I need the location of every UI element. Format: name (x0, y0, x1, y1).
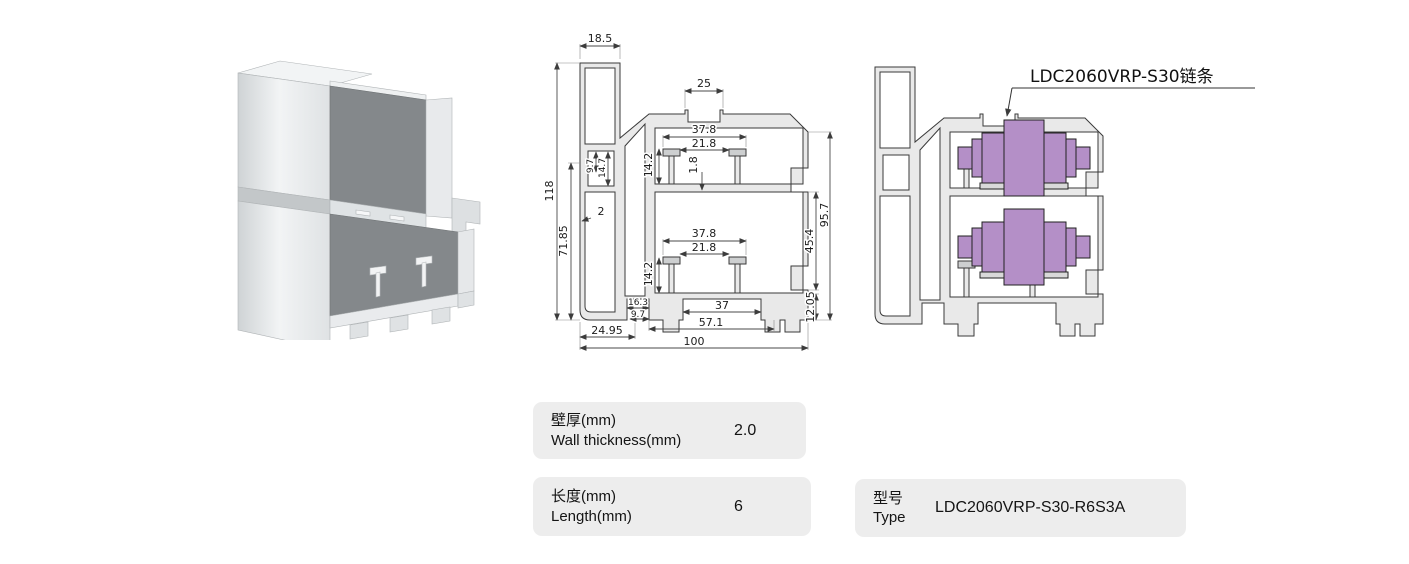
dim-100: 100 (684, 335, 705, 348)
upper-right-wall (426, 98, 452, 218)
dim-14-7: 14.7 (598, 158, 608, 178)
chain-label: LDC2060VRP-S30链条 (1030, 67, 1214, 87)
dim-12-05: 12.05 (804, 291, 817, 323)
dim-16-3: 16.3 (628, 298, 648, 308)
spec-box-wall-thickness: 壁厚(mm) Wall thickness(mm) 2.0 (533, 402, 806, 459)
length-labels: 长度(mm) Length(mm) (551, 487, 734, 526)
chain-drawing-svg: LDC2060VRP-S30链条 (830, 22, 1270, 362)
dim-1-8: 1.8 (687, 156, 700, 174)
profile-3d-render-svg (222, 48, 492, 340)
length-label-en: Length(mm) (551, 507, 734, 527)
dim-37-8-top: 37.8 (692, 123, 717, 136)
upper-box-front-face (238, 73, 330, 200)
dim-25: 25 (697, 77, 711, 90)
dim-14-2-bot: 14.2 (642, 262, 655, 287)
type-label-zh: 型号 (873, 489, 935, 509)
dimension-drawing-svg: 18.5 25 37.8 21.8 2 16.3 9.7 37 57.1 24.… (535, 18, 845, 358)
lower-box-front-face (238, 201, 330, 340)
dim-9-7-side: 9.7 (586, 159, 596, 173)
dim-57-1: 57.1 (699, 316, 724, 329)
length-value: 6 (734, 498, 743, 516)
catalog-page: 18.5 25 37.8 21.8 2 16.3 9.7 37 57.1 24.… (0, 0, 1409, 564)
wall-thickness-label-en: Wall thickness(mm) (551, 431, 734, 451)
profile-3d-render (222, 48, 492, 345)
dim-24-95: 24.95 (591, 324, 623, 337)
wall-thickness-value: 2.0 (734, 422, 756, 440)
dim-18-5: 18.5 (588, 32, 613, 45)
dim-37: 37 (715, 299, 729, 312)
chain-drawing: LDC2060VRP-S30链条 (830, 22, 1270, 367)
wall-thickness-label-zh: 壁厚(mm) (551, 411, 734, 431)
chain-callout: LDC2060VRP-S30链条 (1007, 67, 1255, 116)
foot-4 (458, 291, 474, 308)
dim-21-8-bot: 21.8 (692, 241, 717, 254)
profile-cross-section (580, 63, 808, 332)
type-label-en: Type (873, 508, 935, 528)
dim-21-8-top: 21.8 (692, 137, 717, 150)
foot-2 (390, 315, 408, 332)
dimension-drawing: 18.5 25 37.8 21.8 2 16.3 9.7 37 57.1 24.… (535, 18, 845, 363)
dim-71-85: 71.85 (557, 225, 570, 257)
type-value: LDC2060VRP-S30-R6S3A (935, 499, 1125, 517)
length-label-zh: 长度(mm) (551, 487, 734, 507)
dim-118: 118 (543, 181, 556, 202)
type-labels: 型号 Type (873, 489, 935, 528)
wall-thickness-labels: 壁厚(mm) Wall thickness(mm) (551, 411, 734, 450)
spec-box-type: 型号 Type LDC2060VRP-S30-R6S3A (855, 479, 1186, 537)
dim-37-8-bot: 37.8 (692, 227, 717, 240)
spec-box-length: 长度(mm) Length(mm) 6 (533, 477, 811, 536)
dim-14-2-top: 14.2 (642, 153, 655, 178)
lower-right-wall (458, 229, 474, 294)
dim-45-4: 45.4 (803, 229, 816, 254)
upper-cut-face (330, 86, 426, 216)
dim-2: 2 (598, 205, 605, 218)
foot-1 (350, 322, 368, 339)
profile-cross-section-2 (875, 67, 1103, 336)
dim-9-7-bottom: 9.7 (631, 310, 645, 320)
chain-roller-bottom (958, 209, 1090, 285)
foot-3 (432, 307, 450, 324)
